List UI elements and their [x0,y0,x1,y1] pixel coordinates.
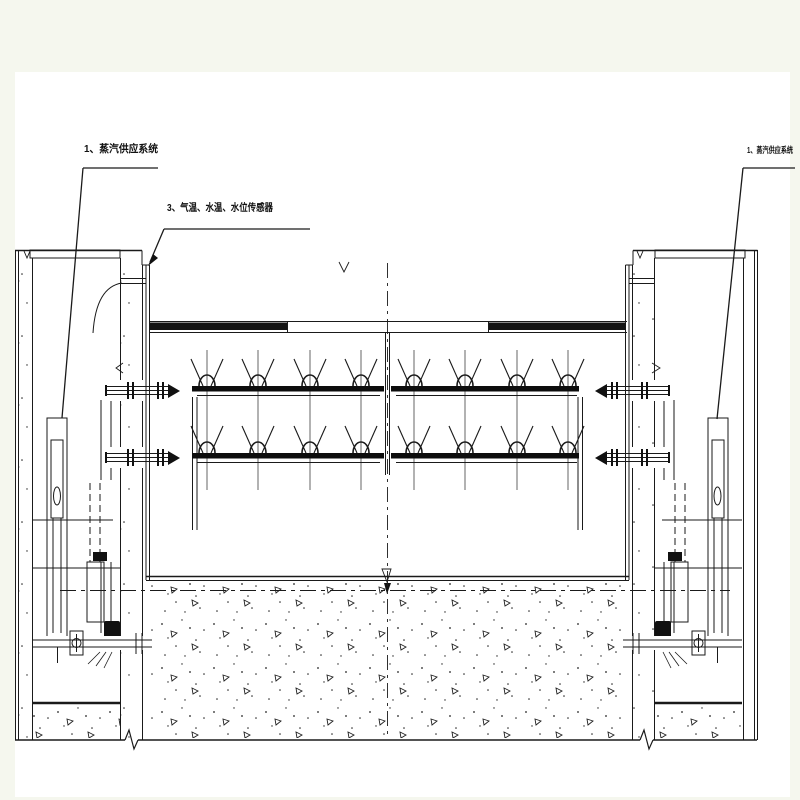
left-pipe-elbow [104,621,120,638]
label-steam-supply-left: 1、蒸汽供应系统 [84,142,158,155]
drawing-page: 1、蒸汽供应系统 3、气温、水温、水位传感器 1、蒸汽供应系统 [0,0,800,800]
nozzle-pipe-row1-right [391,386,579,392]
nozzle-pipe-row1-left [192,386,384,392]
label-steam-supply-right: 1、蒸汽供应系统 [747,145,793,155]
engineering-drawing: 1、蒸汽供应系统 3、气温、水温、水位传感器 1、蒸汽供应系统 [0,0,800,800]
nozzle-pipe-row2-left [192,453,384,459]
nozzle-pipe-row2-right [391,453,579,459]
right-pipe-elbow [655,621,671,638]
foundation-concrete-hatch [150,582,627,738]
label-sensors: 3、气温、水温、水位传感器 [167,201,274,214]
